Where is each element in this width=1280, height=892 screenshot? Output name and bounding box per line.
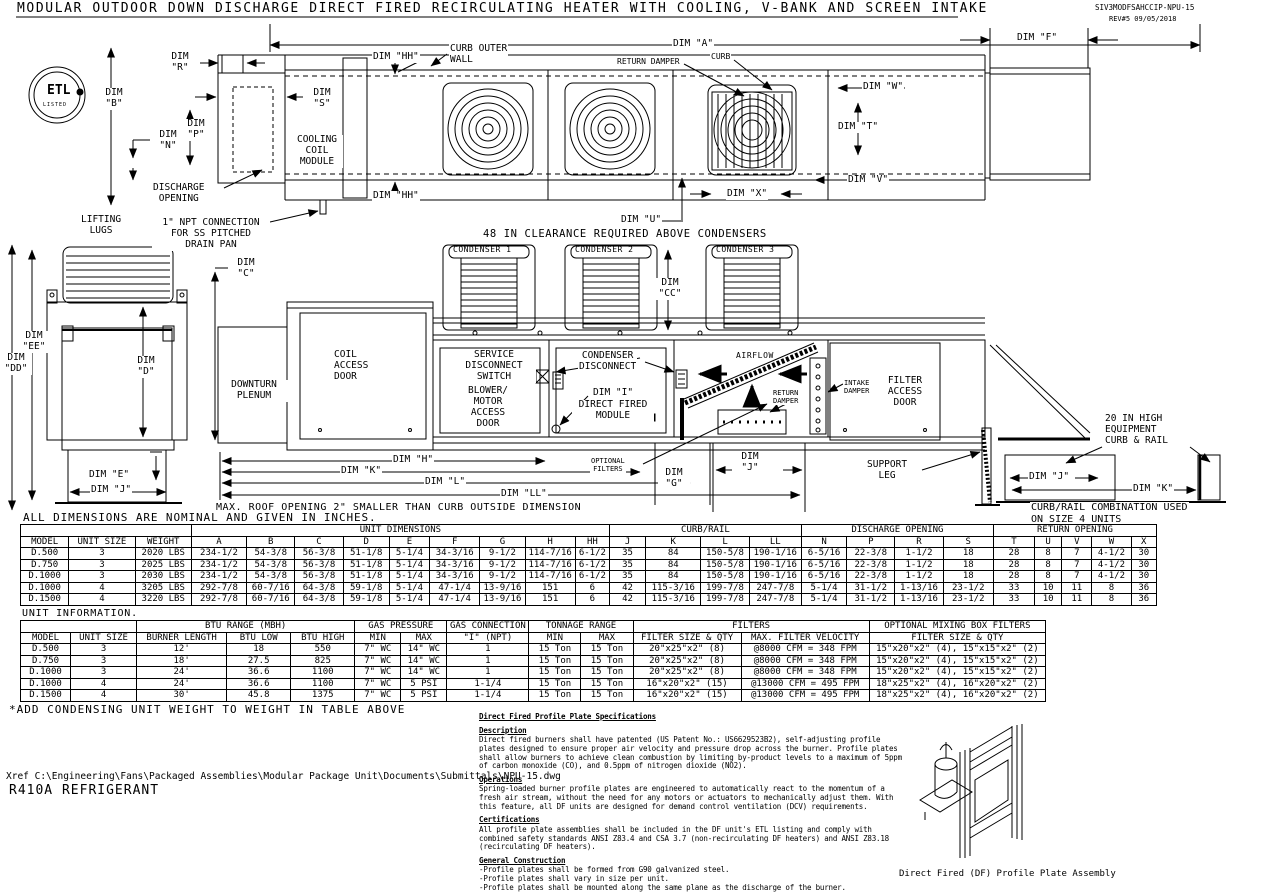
condenser-boxes	[443, 245, 798, 335]
dim-v-label: DIM "V"	[847, 175, 889, 186]
spec-body-certifications: All profile plate assemblies shall be in…	[479, 826, 909, 852]
table-cell: 190-1/16	[749, 548, 801, 560]
table-cell: D.750	[21, 655, 71, 667]
dim-l-label: DIM "L"	[424, 477, 466, 488]
dim-i-label: DIM "I"	[592, 388, 634, 399]
dim-hh-bottom-label: DIM "HH"	[372, 191, 420, 202]
table-cell: 7	[1062, 548, 1092, 560]
table-row: D.150043220 LBS292-7/860-7/1664-3/859-1/…	[21, 594, 1157, 606]
column-header: BTU LOW	[227, 632, 291, 644]
column-header: MIN	[355, 632, 401, 644]
table-cell: 15 Ton	[581, 678, 633, 690]
table-cell: 64-3/8	[295, 594, 343, 606]
column-header: UNIT SIZE	[71, 632, 137, 644]
table-cell: 3	[71, 655, 137, 667]
table-cell: 51-1/8	[343, 559, 389, 571]
table-cell: 5-1/4	[389, 548, 429, 560]
header-row: MODELUNIT SIZEBURNER LENGTHBTU LOWBTU HI…	[21, 632, 1046, 644]
table-cell: 84	[646, 571, 701, 583]
table-cell: 1-13/16	[895, 594, 943, 606]
spec-body-operations: Spring-loaded burner profile plates are …	[479, 785, 909, 811]
fan-3-return-damper	[712, 92, 792, 170]
table-cell: 6-5/16	[801, 548, 846, 560]
column-header: L	[701, 536, 749, 548]
column-header: A	[191, 536, 246, 548]
revision-stamp: REV#5 09/05/2018	[1108, 15, 1177, 23]
table-row: D.750318'27.58257" WC14" WC115 Ton15 Ton…	[21, 655, 1046, 667]
table-cell: 6-5/16	[801, 571, 846, 583]
column-header: N	[801, 536, 846, 548]
group-header-row: UNIT DIMENSIONSCURB/RAILDISCHARGE OPENIN…	[21, 525, 1157, 537]
table-cell: 12'	[137, 644, 227, 656]
table-cell: 1-1/4	[447, 690, 529, 702]
spec-heading-description: Description	[479, 727, 909, 736]
table-cell: 550	[291, 644, 355, 656]
table-cell: 4	[71, 678, 137, 690]
table-cell: 9-1/2	[480, 571, 525, 583]
table-cell: 1	[447, 644, 529, 656]
table-cell: 8	[1035, 548, 1062, 560]
table-cell: 114-7/16	[525, 559, 575, 571]
table-cell: 28	[993, 571, 1034, 583]
table-cell: 7	[1062, 571, 1092, 583]
table-cell: 35	[609, 571, 645, 583]
table-cell: 36.6	[227, 667, 291, 679]
table-row: D.100043205 LBS292-7/860-7/1664-3/859-1/…	[21, 582, 1157, 594]
table-cell: 5-1/4	[389, 594, 429, 606]
assembly-caption: Direct Fired (DF) Profile Plate Assembly	[898, 869, 1117, 879]
filter-access-door-label: FILTER ACCESS DOOR	[878, 376, 932, 409]
dim-h-label: DIM "H"	[392, 455, 434, 466]
table-cell: @13000 CFM = 495 FPM	[741, 690, 869, 702]
table-cell: 3	[69, 559, 135, 571]
table-cell: D.500	[21, 644, 71, 656]
table-cell: 16"x20"x2" (15)	[633, 690, 741, 702]
curb-rail-detail-label: 20 IN HIGH EQUIPMENT CURB & RAIL	[1104, 414, 1169, 447]
table-cell: 22-3/8	[847, 571, 895, 583]
sheet-title: MODULAR OUTDOOR DOWN DISCHARGE DIRECT FI…	[16, 2, 989, 17]
table-cell: 292-7/8	[191, 594, 246, 606]
table-cell: 3220 LBS	[135, 594, 191, 606]
column-group-header: BTU RANGE (MBH)	[137, 621, 355, 633]
table-row: D.1000324'36.611007" WC14" WC115 Ton15 T…	[21, 667, 1046, 679]
table-cell: 51-1/8	[343, 571, 389, 583]
table-cell: 15 Ton	[581, 644, 633, 656]
airflow-label: AIRFLOW	[735, 352, 775, 361]
table-cell: 9-1/2	[480, 559, 525, 571]
table-cell: 2025 LBS	[135, 559, 191, 571]
table-cell: 22-3/8	[847, 559, 895, 571]
dim-w-label: DIM "W"	[862, 82, 904, 93]
unit-information-heading: UNIT INFORMATION.	[21, 608, 139, 620]
header-row: MODELUNIT SIZEWEIGHTABCDEFGHHHJKLLLNPRST…	[21, 536, 1157, 548]
table-cell: 14" WC	[401, 644, 447, 656]
dim-hh-top-label: DIM "HH"	[372, 52, 420, 63]
table-cell: 42	[609, 582, 645, 594]
table-cell: 51-1/8	[343, 548, 389, 560]
table-cell: @13000 CFM = 495 FPM	[741, 678, 869, 690]
curb-rail-combination-note: CURB/RAIL COMBINATION USED ON SIZE 4 UNI…	[1030, 502, 1189, 525]
column-header: C	[295, 536, 343, 548]
table-cell: 6-1/2	[575, 571, 609, 583]
column-group-header: GAS CONNECTION	[447, 621, 529, 633]
table-cell: 18	[227, 644, 291, 656]
table-cell: 247-7/8	[749, 594, 801, 606]
table-cell: 56-3/8	[295, 571, 343, 583]
blower-motor-access-label: BLOWER/ MOTOR ACCESS DOOR	[456, 386, 520, 430]
table-cell: 20"x25"x2" (8)	[633, 644, 741, 656]
table-cell: 825	[291, 655, 355, 667]
spec-title: Direct Fired Profile Plate Specification…	[479, 713, 909, 722]
column-header: LL	[749, 536, 801, 548]
dim-b-label: DIM "B"	[96, 88, 132, 110]
table-cell: 18'	[137, 655, 227, 667]
condenser-1-label: CONDENSER 1	[452, 246, 512, 255]
service-disconnect-label: SERVICE DISCONNECT SWITCH	[452, 350, 536, 383]
fan-2	[570, 89, 650, 169]
direct-fired-module-label: DIRECT FIRED MODULE	[572, 400, 654, 422]
column-header: BURNER LENGTH	[137, 632, 227, 644]
table-cell: 13-9/16	[480, 594, 525, 606]
table-cell: 4-1/2	[1092, 559, 1131, 571]
downturn-plenum-label: DOWNTURN PLENUM	[220, 380, 288, 402]
column-header: T	[993, 536, 1034, 548]
profile-plate-specifications: Direct Fired Profile Plate Specification…	[479, 713, 909, 892]
return-damper-plan-label: RETURN DAMPER	[616, 58, 681, 67]
table-cell: 59-1/8	[343, 582, 389, 594]
table-cell: 3	[69, 548, 135, 560]
fan-1	[448, 89, 528, 169]
dim-cc-label: DIM "CC"	[652, 278, 688, 300]
table-cell: 8	[1035, 559, 1062, 571]
column-header: G	[480, 536, 525, 548]
table-cell: 4	[69, 594, 135, 606]
column-header: V	[1062, 536, 1092, 548]
table-cell: 190-1/16	[749, 559, 801, 571]
table-cell: 18	[943, 571, 993, 583]
table-cell: 190-1/16	[749, 571, 801, 583]
dim-k-curb-label: DIM "K"	[1132, 484, 1174, 495]
column-header: MODEL	[21, 632, 71, 644]
dim-k-label: DIM "K"	[340, 466, 382, 477]
table-cell: 18	[943, 559, 993, 571]
coil-access-door-label: COIL ACCESS DOOR	[333, 350, 369, 383]
column-header: UNIT SIZE	[69, 536, 135, 548]
table-cell: 5-1/4	[801, 582, 846, 594]
table-cell: 150-5/8	[701, 548, 749, 560]
table-cell: 5-1/4	[389, 571, 429, 583]
table-cell: 5 PSI	[401, 690, 447, 702]
table-cell: 4-1/2	[1092, 571, 1131, 583]
column-header: MAX	[581, 632, 633, 644]
table-cell: 16"x20"x2" (15)	[633, 678, 741, 690]
table-cell: 33	[993, 582, 1034, 594]
column-group-header: DISCHARGE OPENING	[801, 525, 993, 537]
table-cell: 84	[646, 559, 701, 571]
table-cell: 7" WC	[355, 678, 401, 690]
table-cell: 54-3/8	[247, 571, 295, 583]
table-cell: 34-3/16	[430, 548, 480, 560]
table-cell: 23-1/2	[943, 594, 993, 606]
condenser-disconnect-label: CONDENSER DISCONNECT	[578, 351, 637, 373]
column-header: S	[943, 536, 993, 548]
table-cell: 292-7/8	[191, 582, 246, 594]
drawing-number: SIV3MODFSAHCCIP-NPU-15	[1094, 4, 1195, 13]
table-cell: 15 Ton	[529, 690, 581, 702]
table-cell: 24'	[137, 667, 227, 679]
table-cell: 45.8	[227, 690, 291, 702]
column-header: FILTER SIZE & QTY	[869, 632, 1045, 644]
table-cell: D.750	[21, 559, 69, 571]
table-cell: 7" WC	[355, 690, 401, 702]
table-cell: 1-1/2	[895, 559, 943, 571]
table-cell: 54-3/8	[247, 559, 295, 571]
column-header: BTU HIGH	[291, 632, 355, 644]
cooling-coil-module-label: COOLING COIL MODULE	[291, 135, 343, 168]
curb-outer-wall-label: CURB OUTER WALL	[449, 44, 508, 66]
table-cell: 114-7/16	[525, 571, 575, 583]
dim-f-label: DIM "F"	[1016, 33, 1058, 44]
intake-damper-label: INTAKE DAMPER	[843, 380, 870, 395]
dim-s-label: DIM "S"	[304, 88, 340, 110]
column-header: B	[247, 536, 295, 548]
dim-a-label: DIM "A"	[672, 39, 714, 50]
table-cell: 4	[71, 690, 137, 702]
table-cell: 13-9/16	[480, 582, 525, 594]
table-cell: 114-7/16	[525, 548, 575, 560]
dim-dd-label: DIM "DD"	[0, 353, 32, 375]
table-cell: 18"x25"x2" (4), 16"x20"x2" (2)	[869, 690, 1045, 702]
table-cell: D.1000	[21, 678, 71, 690]
column-header: X	[1131, 536, 1156, 548]
column-header: D	[343, 536, 389, 548]
table-cell: 42	[609, 594, 645, 606]
dim-u-label: DIM "U"	[620, 215, 662, 226]
table-cell: 18"x25"x2" (4), 16"x20"x2" (2)	[869, 678, 1045, 690]
table-cell: 3	[71, 667, 137, 679]
table-cell: 7" WC	[355, 655, 401, 667]
table-row: D.1000424'36.611007" WC5 PSI1-1/415 Ton1…	[21, 678, 1046, 690]
table-cell: 15 Ton	[529, 667, 581, 679]
column-header: MODEL	[21, 536, 69, 548]
table-row: D.75032025 LBS234-1/254-3/856-3/851-1/85…	[21, 559, 1157, 571]
column-group-header	[21, 621, 137, 633]
unit-information-table: BTU RANGE (MBH)GAS PRESSUREGAS CONNECTIO…	[20, 620, 1046, 702]
table-cell: 234-1/2	[191, 548, 246, 560]
table-cell: 5-1/4	[801, 594, 846, 606]
condenser-2-label: CONDENSER 2	[574, 246, 634, 255]
clearance-note: 48 IN CLEARANCE REQUIRED ABOVE CONDENSER…	[482, 228, 768, 240]
table-cell: 15 Ton	[581, 667, 633, 679]
dim-j-curb-label: DIM "J"	[1028, 472, 1070, 483]
dim-g-label: DIM "G"	[658, 468, 690, 490]
table-cell: 15"x20"x2" (4), 15"x15"x2" (2)	[869, 644, 1045, 656]
table-cell: 3205 LBS	[135, 582, 191, 594]
column-group-header: UNIT DIMENSIONS	[191, 525, 609, 537]
table-cell: 56-3/8	[295, 548, 343, 560]
curb-plan-label: CURB	[710, 53, 731, 62]
table-cell: 1-1/4	[447, 678, 529, 690]
table-cell: 60-7/16	[247, 594, 295, 606]
table-cell: 60-7/16	[247, 582, 295, 594]
add-weight-note: *ADD CONDENSING UNIT WEIGHT TO WEIGHT IN…	[8, 704, 406, 717]
table-cell: 151	[525, 594, 575, 606]
table-cell: 35	[609, 559, 645, 571]
column-header: H	[525, 536, 575, 548]
table-cell: 15 Ton	[581, 690, 633, 702]
table-row: D.50032020 LBS234-1/254-3/856-3/851-1/85…	[21, 548, 1157, 560]
spec-heading-certifications: Certifications	[479, 816, 909, 825]
column-group-header	[21, 525, 192, 537]
table-cell: 15 Ton	[529, 655, 581, 667]
support-leg-label: SUPPORT LEG	[866, 460, 908, 482]
table-cell: 54-3/8	[247, 548, 295, 560]
table-cell: 1	[447, 655, 529, 667]
table-cell: 150-5/8	[701, 559, 749, 571]
table-cell: 24'	[137, 678, 227, 690]
group-header-row: BTU RANGE (MBH)GAS PRESSUREGAS CONNECTIO…	[21, 621, 1046, 633]
column-group-header: RETURN OPENING	[993, 525, 1156, 537]
column-header: K	[646, 536, 701, 548]
table-cell: 36	[1131, 594, 1156, 606]
optional-filters-label: OPTIONAL FILTERS	[590, 458, 626, 473]
table-cell: 84	[646, 548, 701, 560]
column-header: J	[609, 536, 645, 548]
column-header: FILTER SIZE & QTY	[633, 632, 741, 644]
table-cell: 8	[1092, 594, 1131, 606]
table-cell: 15 Ton	[529, 644, 581, 656]
table-cell: D.1000	[21, 571, 69, 583]
column-group-header: TONNAGE RANGE	[529, 621, 633, 633]
table-cell: 115-3/16	[646, 594, 701, 606]
spec-body-general-construction: -Profile plates shall be formed from G90…	[479, 866, 909, 892]
dim-c-label: DIM "C"	[228, 258, 264, 280]
table-cell: 20"x25"x2" (8)	[633, 667, 741, 679]
table-cell: 1-1/2	[895, 571, 943, 583]
table-cell: 30'	[137, 690, 227, 702]
table-row: D.500312'185507" WC14" WC115 Ton15 Ton20…	[21, 644, 1046, 656]
table-cell: 8	[1092, 582, 1131, 594]
table-cell: D.500	[21, 548, 69, 560]
column-header: "I" (NPT)	[447, 632, 529, 644]
table-cell: 2020 LBS	[135, 548, 191, 560]
table-cell: 64-3/8	[295, 582, 343, 594]
dim-x-label: DIM "X"	[726, 189, 768, 200]
table-cell: 6	[575, 582, 609, 594]
column-header: MAX	[401, 632, 447, 644]
table-cell: 36.6	[227, 678, 291, 690]
table-cell: D.1500	[21, 594, 69, 606]
table-cell: 6-1/2	[575, 548, 609, 560]
table-cell: 20"x25"x2" (8)	[633, 655, 741, 667]
table-cell: @8000 CFM = 348 FPM	[741, 667, 869, 679]
column-header: W	[1092, 536, 1131, 548]
column-header: U	[1035, 536, 1062, 548]
table-row: D.1500430'45.813757" WC5 PSI1-1/415 Ton1…	[21, 690, 1046, 702]
table-cell: 5-1/4	[389, 582, 429, 594]
spec-body-description: Direct fired burners shall have patented…	[479, 736, 909, 771]
table-cell: 1100	[291, 678, 355, 690]
table-cell: 234-1/2	[191, 559, 246, 571]
table-cell: 1	[447, 667, 529, 679]
table-cell: @8000 CFM = 348 FPM	[741, 655, 869, 667]
table-cell: 31-1/2	[847, 594, 895, 606]
table-cell: @8000 CFM = 348 FPM	[741, 644, 869, 656]
table-cell: 30	[1131, 571, 1156, 583]
column-header: MAX. FILTER VELOCITY	[741, 632, 869, 644]
table-cell: 28	[993, 548, 1034, 560]
refrigerant-note: R410A REFRIGERANT	[8, 784, 160, 799]
table-cell: 30	[1131, 548, 1156, 560]
table-cell: 35	[609, 548, 645, 560]
table-cell: 15 Ton	[581, 655, 633, 667]
table-cell: 47-1/4	[430, 582, 480, 594]
dim-ee-label: DIM "EE"	[16, 331, 52, 353]
table-cell: 3	[69, 571, 135, 583]
table-cell: 6-5/16	[801, 559, 846, 571]
discharge-opening-label: DISCHARGE OPENING	[152, 183, 205, 205]
table-cell: 30	[1131, 559, 1156, 571]
dimensions-nominal-note: ALL DIMENSIONS ARE NOMINAL AND GIVEN IN …	[22, 512, 378, 525]
dim-j-left-label: DIM "J"	[90, 485, 132, 496]
table-cell: 150-5/8	[701, 571, 749, 583]
table-cell: 199-7/8	[701, 594, 749, 606]
table-row: D.100032030 LBS234-1/254-3/856-3/851-1/8…	[21, 571, 1157, 583]
column-group-header: OPTIONAL MIXING BOX FILTERS	[869, 621, 1045, 633]
table-cell: 199-7/8	[701, 582, 749, 594]
dim-d-label: DIM "D"	[128, 356, 164, 378]
table-cell: 15"x20"x2" (4), 15"x15"x2" (2)	[869, 655, 1045, 667]
table-cell: 22-3/8	[847, 548, 895, 560]
dim-e-label: DIM "E"	[88, 470, 130, 481]
table-cell: 1375	[291, 690, 355, 702]
table-cell: 234-1/2	[191, 571, 246, 583]
column-header: MIN	[529, 632, 581, 644]
table-cell: 1-13/16	[895, 582, 943, 594]
table-cell: 11	[1062, 594, 1092, 606]
table-cell: 4	[69, 582, 135, 594]
unit-dimensions-table: UNIT DIMENSIONSCURB/RAILDISCHARGE OPENIN…	[20, 524, 1157, 606]
table-cell: 115-3/16	[646, 582, 701, 594]
table-cell: 14" WC	[401, 667, 447, 679]
table-cell: 31-1/2	[847, 582, 895, 594]
table-cell: 7	[1062, 559, 1092, 571]
column-header: WEIGHT	[135, 536, 191, 548]
table-cell: 6-1/2	[575, 559, 609, 571]
table-cell: D.1000	[21, 667, 71, 679]
table-cell: 14" WC	[401, 655, 447, 667]
table-cell: 15 Ton	[529, 678, 581, 690]
table-cell: 9-1/2	[480, 548, 525, 560]
spec-heading-general-construction: General Construction	[479, 857, 909, 866]
etl-logo-text: ETL	[46, 84, 71, 99]
table-cell: 1-1/2	[895, 548, 943, 560]
npt-connection-label: 1" NPT CONNECTION FOR SS PITCHED DRAIN P…	[152, 218, 270, 251]
dim-r-label: DIM "R"	[162, 52, 198, 74]
table-cell: 4-1/2	[1092, 548, 1131, 560]
column-group-header: FILTERS	[633, 621, 869, 633]
drawing-sheet: MODULAR OUTDOOR DOWN DISCHARGE DIRECT FI…	[0, 0, 1280, 892]
table-cell: 11	[1062, 582, 1092, 594]
table-cell: 8	[1035, 571, 1062, 583]
table-cell: 59-1/8	[343, 594, 389, 606]
table-cell: 1100	[291, 667, 355, 679]
column-header: E	[389, 536, 429, 548]
etl-logo-sub: LISTED	[42, 103, 68, 109]
table-cell: 247-7/8	[749, 582, 801, 594]
condenser-3-label: CONDENSER 3	[715, 246, 775, 255]
table-cell: 151	[525, 582, 575, 594]
